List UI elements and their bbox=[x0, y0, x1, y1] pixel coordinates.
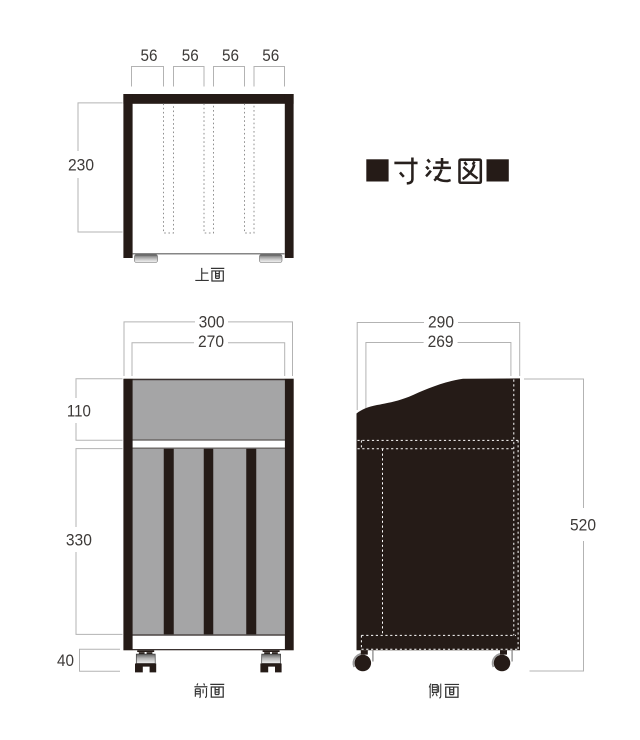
svg-text:56: 56 bbox=[222, 46, 239, 65]
svg-text:330: 330 bbox=[66, 531, 92, 550]
svg-text:230: 230 bbox=[68, 155, 94, 174]
svg-text:56: 56 bbox=[141, 46, 158, 65]
svg-text:270: 270 bbox=[198, 332, 224, 351]
svg-text:56: 56 bbox=[182, 46, 199, 65]
svg-text:269: 269 bbox=[428, 332, 454, 351]
svg-text:300: 300 bbox=[199, 313, 225, 332]
svg-text:56: 56 bbox=[262, 46, 279, 65]
svg-text:290: 290 bbox=[428, 313, 454, 332]
svg-text:520: 520 bbox=[570, 516, 596, 535]
svg-text:40: 40 bbox=[57, 651, 74, 670]
svg-text:110: 110 bbox=[67, 401, 91, 420]
